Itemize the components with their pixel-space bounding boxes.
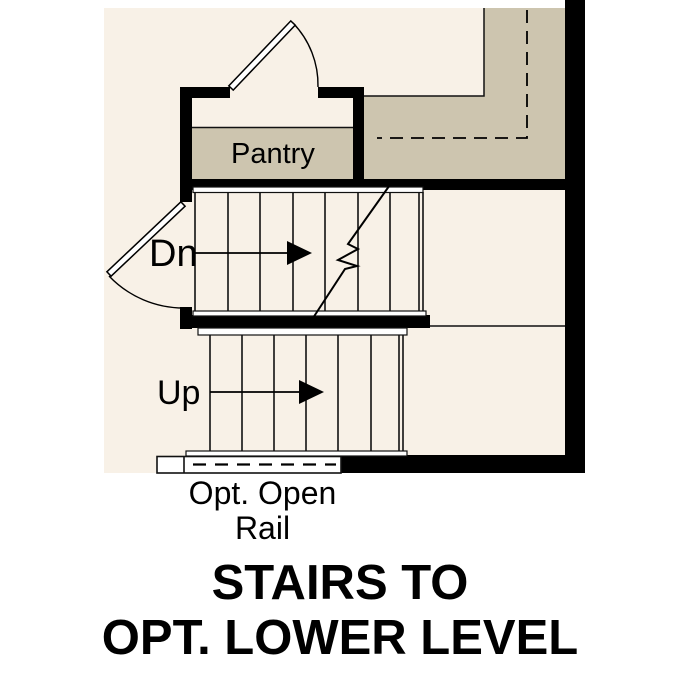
- stair-nosing-band-bottom: [193, 311, 426, 316]
- open-rail-caption-line2: Rail: [140, 511, 385, 546]
- open-rail-caption: Opt. Open Rail: [140, 476, 385, 546]
- floor-plan-page: Pantry Dn Up Opt. Open Rail STAIRS TO OP…: [0, 0, 687, 687]
- wall-stair-landing: [192, 315, 430, 328]
- stair-nosing-band-bottom: [186, 451, 407, 456]
- wall-right: [565, 0, 585, 473]
- wall-door-jamb-bottom: [180, 307, 192, 329]
- wall-pantry-top-left: [180, 87, 230, 98]
- wall-door-jamb-top: [180, 190, 192, 202]
- stair-nosing-band-top: [198, 328, 407, 335]
- wall-bottom: [340, 455, 585, 473]
- pantry-label: Pantry: [231, 138, 315, 170]
- up-label: Up: [157, 374, 200, 412]
- wall-pantry-left: [180, 87, 192, 190]
- open-rail-caption-line1: Opt. Open: [140, 476, 385, 511]
- plan-title: STAIRS TO OPT. LOWER LEVEL: [10, 556, 670, 666]
- open-rail: [157, 457, 341, 474]
- wall-pantry-right: [353, 87, 364, 180]
- plan-title-line1: STAIRS TO: [10, 556, 670, 611]
- down-label: Dn: [149, 233, 198, 275]
- plan-title-line2: OPT. LOWER LEVEL: [10, 611, 670, 666]
